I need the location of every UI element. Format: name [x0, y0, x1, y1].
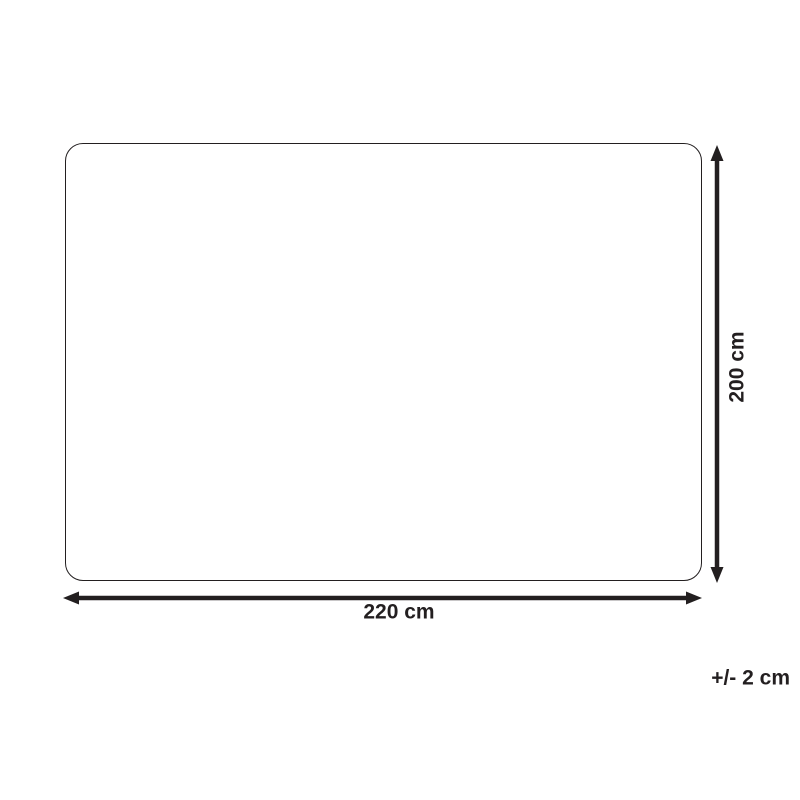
width-arrow-head-left [63, 592, 79, 605]
height-dimension-arrow [711, 145, 724, 583]
width-dimension-label: 220 cm [363, 602, 434, 623]
width-arrow-head-right [686, 592, 702, 605]
height-arrow-head-bottom [711, 567, 724, 583]
tolerance-label: +/- 2 cm [711, 668, 790, 689]
height-arrow-head-top [711, 145, 724, 161]
dimension-arrows [0, 0, 800, 800]
dimension-diagram-canvas: 200 cm 220 cm +/- 2 cm [0, 0, 800, 800]
height-dimension-label: 200 cm [727, 331, 748, 402]
